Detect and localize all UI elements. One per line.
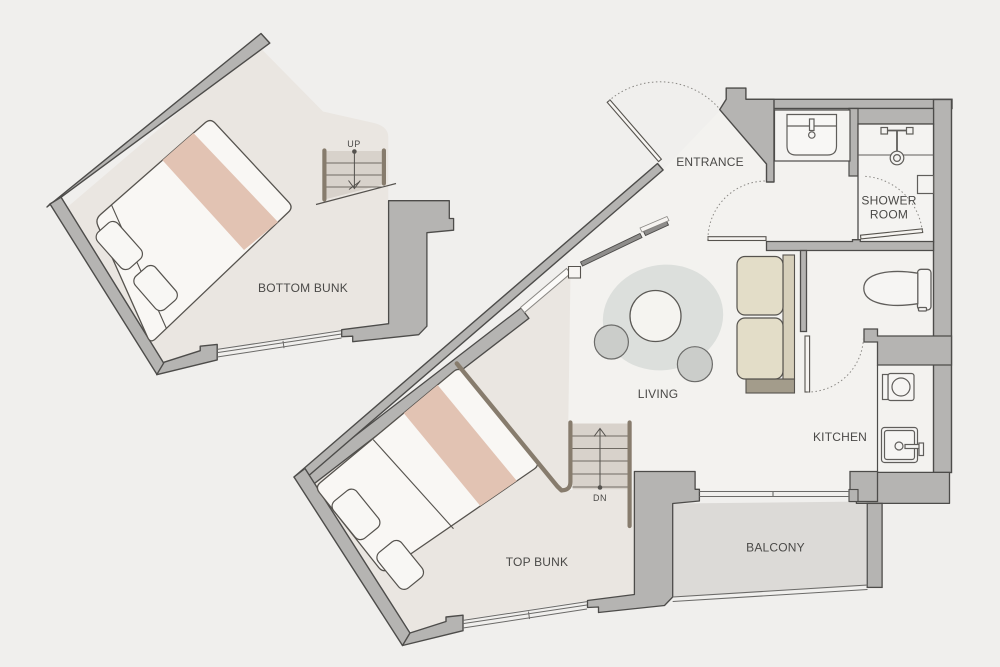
svg-text:ENTRANCE: ENTRANCE xyxy=(676,155,744,169)
svg-text:UP: UP xyxy=(347,139,361,149)
svg-text:SHOWER: SHOWER xyxy=(861,194,916,208)
svg-text:BALCONY: BALCONY xyxy=(746,541,805,555)
svg-text:KITCHEN: KITCHEN xyxy=(813,430,867,444)
svg-text:LIVING: LIVING xyxy=(638,387,679,401)
svg-text:ROOM: ROOM xyxy=(870,208,908,222)
svg-text:TOP BUNK: TOP BUNK xyxy=(506,555,569,569)
svg-text:BOTTOM BUNK: BOTTOM BUNK xyxy=(258,281,348,295)
svg-text:DN: DN xyxy=(593,493,607,503)
